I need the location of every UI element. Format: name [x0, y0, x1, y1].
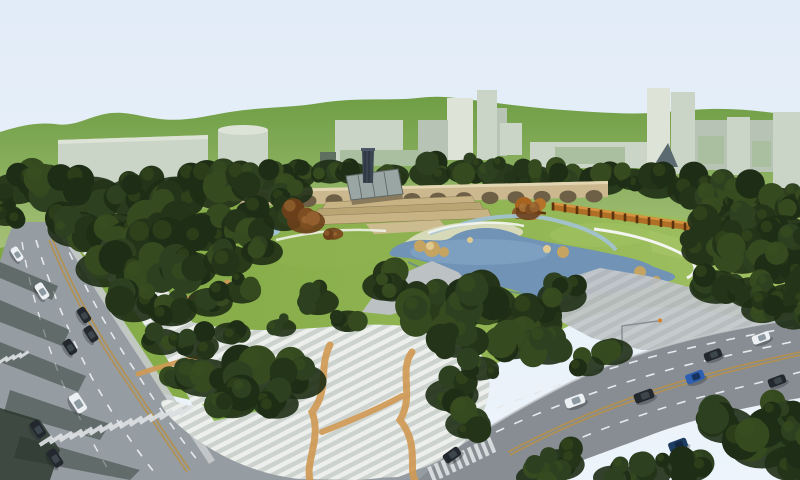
- render-canvas: [0, 0, 800, 480]
- tree-blob: [105, 286, 135, 316]
- tree-blob: [457, 348, 479, 370]
- tree-highlight: [563, 451, 573, 461]
- tree-highlight: [520, 204, 525, 209]
- tree-highlight: [234, 380, 244, 390]
- pergola-post: [672, 221, 675, 229]
- tree-blob: [216, 393, 232, 409]
- tree-blob: [209, 170, 227, 188]
- tree-highlight: [383, 285, 390, 292]
- tree-highlight: [140, 284, 148, 292]
- tree-highlight: [657, 454, 664, 461]
- tree-highlight: [757, 209, 767, 219]
- tree-highlight: [233, 273, 240, 280]
- tree-highlight: [324, 230, 329, 235]
- tree-highlight: [544, 289, 554, 299]
- tree-highlight: [761, 221, 773, 233]
- tree-highlight: [473, 159, 479, 165]
- tree-blob: [242, 277, 259, 294]
- tree-highlight: [198, 342, 208, 352]
- tree-highlight: [152, 220, 171, 239]
- pergola-post: [576, 206, 579, 214]
- tree-highlight: [695, 265, 707, 277]
- tree-highlight: [127, 262, 141, 276]
- tree-highlight: [156, 296, 167, 307]
- park-aerial-rendering: [0, 0, 800, 480]
- tree-blob: [697, 402, 729, 434]
- tree-blob: [287, 180, 303, 196]
- pergola-post: [600, 210, 603, 218]
- tree-highlight: [571, 360, 580, 369]
- pergola-post: [624, 214, 627, 222]
- tree-highlight: [96, 216, 109, 229]
- tree-blob: [63, 177, 91, 205]
- pergola-post: [636, 215, 639, 223]
- tree-highlight: [333, 232, 337, 236]
- tree-blob: [600, 339, 622, 361]
- pergola-post: [660, 219, 663, 227]
- tree-highlight: [764, 403, 774, 413]
- tree-highlight: [767, 244, 779, 256]
- tree-blob: [294, 160, 310, 176]
- tree-blob: [145, 322, 164, 341]
- tree-blob: [234, 172, 260, 198]
- tree-blob: [528, 159, 542, 173]
- tree-highlight: [246, 197, 259, 210]
- tree-blob: [453, 163, 476, 186]
- tree-highlight: [653, 163, 666, 176]
- tree-highlight: [384, 259, 398, 273]
- pergola-post: [552, 203, 555, 211]
- glass-pavilion: [346, 169, 403, 205]
- tree-blob: [330, 310, 343, 323]
- tree-highlight: [405, 297, 417, 309]
- tree-highlight: [780, 226, 792, 238]
- tree-highlight: [514, 295, 530, 311]
- tree-blob: [778, 199, 797, 218]
- tree-highlight: [488, 367, 494, 373]
- tree-highlight: [494, 158, 501, 165]
- tree-highlight: [284, 200, 295, 211]
- tree-highlight: [154, 306, 164, 316]
- tree-highlight: [214, 250, 228, 264]
- tree-blob: [415, 152, 438, 175]
- tree-highlight: [738, 420, 755, 437]
- tree-blob: [347, 311, 367, 331]
- tree-blob: [258, 159, 279, 180]
- tree-highlight: [170, 333, 177, 340]
- tree-highlight: [225, 328, 234, 337]
- tree-highlight: [459, 425, 466, 432]
- tree-blob: [194, 321, 215, 342]
- tree-blob: [376, 273, 388, 285]
- tree-highlight: [9, 212, 18, 221]
- tree-highlight: [786, 185, 795, 194]
- tree-blob: [590, 163, 611, 184]
- tree-blob: [235, 324, 247, 336]
- tree-highlight: [694, 458, 704, 468]
- tree-blob: [549, 163, 568, 182]
- tree-blob: [306, 211, 320, 225]
- dark-tower: [361, 148, 375, 183]
- tree-highlight: [129, 221, 149, 241]
- tree-blob: [630, 451, 656, 477]
- tree-highlight: [459, 275, 476, 292]
- tree-blob: [680, 230, 699, 249]
- tree-highlight: [268, 321, 276, 329]
- tree-highlight: [699, 184, 708, 193]
- tree-blob: [669, 446, 695, 472]
- tree-highlight: [614, 458, 622, 466]
- tree-cluster: [625, 451, 671, 480]
- pergola-post: [648, 217, 651, 225]
- tree-highlight: [531, 328, 543, 340]
- tree-blob: [279, 313, 289, 323]
- tree-blob: [122, 175, 142, 195]
- bridge-arch: [482, 192, 499, 204]
- tree-blob: [717, 233, 746, 262]
- tree-blob: [614, 162, 631, 179]
- tree-cluster: [537, 272, 587, 312]
- tree-blob: [426, 324, 456, 354]
- tree-highlight: [141, 168, 154, 181]
- tree-highlight: [783, 421, 794, 432]
- tree-highlight: [27, 166, 42, 181]
- tree-highlight: [261, 398, 272, 409]
- pergola-post: [564, 204, 567, 212]
- tree-blob: [178, 329, 196, 347]
- tree-highlight: [186, 228, 199, 241]
- tree-highlight: [713, 171, 726, 184]
- tree-highlight: [753, 292, 762, 301]
- tree-blob: [525, 455, 544, 474]
- pergola-post: [612, 212, 615, 220]
- bridge-arch: [560, 190, 577, 202]
- tree-highlight: [192, 362, 206, 376]
- tree-highlight: [693, 206, 707, 220]
- pergola-post: [588, 208, 591, 216]
- tree-highlight: [211, 282, 221, 292]
- tree-highlight: [758, 275, 766, 283]
- tree-blob: [313, 167, 325, 179]
- tree-blob: [248, 240, 266, 258]
- tree-blob: [728, 279, 744, 295]
- bridge-arch: [586, 190, 603, 202]
- tree-highlight: [56, 221, 65, 230]
- tree-blob: [485, 326, 517, 358]
- tree-highlight: [530, 203, 535, 208]
- tree-highlight: [561, 438, 573, 450]
- tree-blob: [341, 162, 354, 175]
- tree-highlight: [453, 398, 466, 411]
- tree-blob: [298, 290, 315, 307]
- pergola-post: [684, 223, 687, 231]
